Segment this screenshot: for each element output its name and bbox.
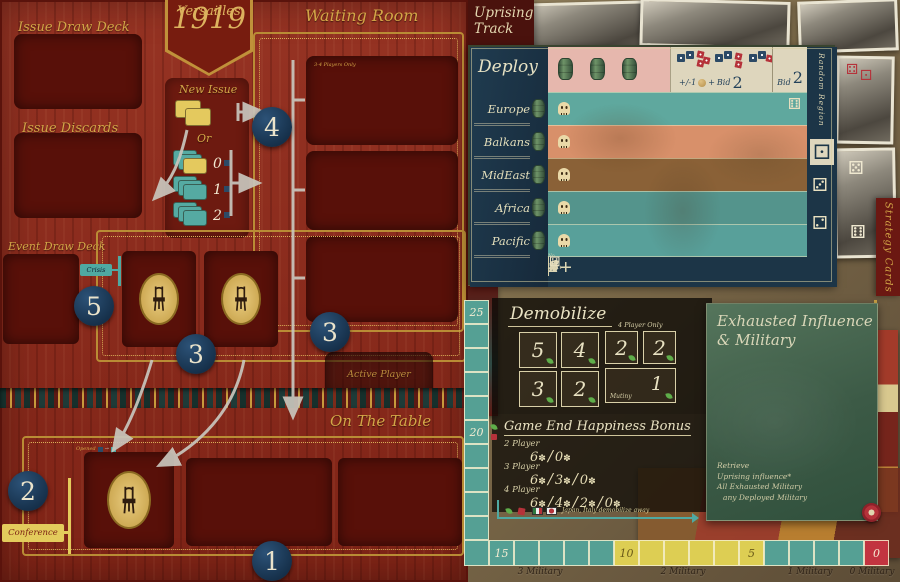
or-label: Or [197,132,211,145]
military-label: 3 Military [505,567,575,577]
waiting-room-slot-2 [306,151,458,230]
white-die-icon: ⚂ [812,175,828,196]
exhausted-title: Exhausted Influence & Military [717,312,873,350]
region-label-africa: Africa [474,201,530,225]
bid-value: 2 [732,73,742,92]
main-board: Issue Draw Deck Issue Discards Versaille… [0,0,468,582]
deploy-row-africa [548,191,807,224]
demobilize-box-4p: 2 [643,331,676,364]
demobilize-box: 4 [561,332,599,368]
uprising-line2: Track [474,21,533,37]
step-2-marker: 2 [8,471,48,511]
stack-count: 1 [213,182,222,198]
deploy-row-europe [548,92,807,125]
flower-icon: ✽ [588,477,596,487]
skull-icon [558,234,570,247]
deploy-header-bid: +/-1 + Bid 2 [670,47,772,92]
bid-word: Bid [717,78,731,87]
score-cell [664,540,689,566]
cube-icon [224,212,230,218]
flower-icon: ✽ [563,454,571,464]
barrel-icon [532,165,545,184]
versailles-1919-board: Issue Draw Deck Issue Discards Versaille… [0,0,900,582]
leaf-icon [666,354,673,361]
rosette-icon [862,503,881,522]
players-only-note: 3-4 Players Only [314,62,356,68]
demobilize-arrow-note: Japan, Italy demobilize away [492,500,707,522]
step-3-marker: 3 [310,312,350,352]
white-die-icon: ⚅ [850,222,866,243]
exhausted-notes: Retrieve Uprising influence* All Exhaust… [717,461,807,503]
demobilize-box: 5 [519,332,557,368]
deploy-result-row: x x 6+ 5+ 4+ 3+ 2+ 1+ ⚅ No Effect [548,257,837,287]
happiness-title: Game End Happiness Bonus [504,419,691,436]
score-cell [814,540,839,566]
score-cell [464,444,489,468]
demobilize-value: 2 [615,336,628,360]
step-5-marker: 5 [74,286,114,326]
happiness-value: 0 [580,473,588,488]
military-label: 2 Military [648,567,718,577]
navy-die-icon [715,54,723,62]
exhausted-note: Retrieve [717,461,807,472]
score-cell [689,540,714,566]
skull-icon [558,201,570,214]
table-chair-slot [84,452,174,548]
demobilize-panel: Demobilize 5 4 3 2 4 Player Only 2 2 1 M… [492,298,712,414]
navy-die-icon [677,54,685,62]
happiness-value: 3 [555,473,563,488]
demobilize-value: 2 [653,336,666,360]
score-cell [764,540,789,566]
barrel-icon [532,99,545,118]
military-label: 1 Military [775,567,845,577]
barrel-icon [532,198,545,217]
deploy-table: Deploy Europe Balkans MidEast Africa Pac… [468,45,835,285]
arrow-line [497,500,499,518]
region-label-europe: Europe [474,102,530,126]
exhausted-note: Uprising influence* [717,472,807,483]
demobilize-title: Demobilize [508,304,612,327]
leaf-icon [588,357,595,364]
exhausted-note: any Deployed Military [717,493,807,504]
cube-icon [224,186,230,192]
uprising-line1: Uprising [474,5,533,21]
score-cell-10: 10 [614,540,639,566]
exhausted-title-line1: Exhausted Influence [717,312,873,331]
score-cell [789,540,814,566]
score-cell [514,540,539,566]
issue-card [183,210,207,226]
demobilize-box: 3 [519,371,557,407]
step-4-marker: 4 [252,107,292,147]
score-cell-5: 5 [739,540,764,566]
bid-right-word: Bid [777,78,791,87]
score-cell [464,516,489,540]
bid-right-value: 2 [791,68,803,87]
mutiny-label: Mutiny [610,393,632,400]
game-title-year: 1919 [172,4,246,32]
stack-count: 0 [213,156,222,172]
demobilize-value: 3 [532,377,545,401]
mutiny-value: 1 [651,373,663,395]
score-cell [639,540,664,566]
issue-card [185,108,211,126]
step-3-marker: 3 [176,334,216,374]
arrow-line [497,517,695,519]
japan-flag-icon [546,507,557,515]
red-die-icon [696,59,704,67]
red-die-icon [517,507,525,515]
score-cell [564,540,589,566]
red-die-icon: ⚃ [846,62,858,78]
chair-card-slot [122,251,196,347]
active-player-label: Active Player [347,369,411,380]
region-label-pacific: Pacific [474,234,530,258]
table-slot [186,458,332,546]
deploy-label-column: Deploy Europe Balkans MidEast Africa Pac… [470,47,548,287]
title-plaque-inner: Versailles 1919 [168,0,250,73]
navy-die-icon [758,51,766,59]
score-cell-25: 25 [464,300,489,324]
flower-icon: ✽ [563,477,571,487]
new-issue-label: New Issue [179,83,237,96]
white-die-icon: ⚁ [812,213,828,234]
issue-card [183,184,207,200]
score-cell-20: 20 [464,420,489,444]
title-plaque: Versailles 1919 [165,0,253,76]
navy-die-icon [686,51,694,59]
score-cell [714,540,739,566]
score-cell [464,324,489,348]
random-region-label: Random Region [817,53,826,127]
leaf-icon [505,507,512,514]
score-cell [464,540,489,566]
leaf-icon [546,396,553,403]
conference-connector [68,478,71,554]
leaf-icon [588,396,595,403]
navy-die-icon [749,54,757,62]
demobilize-box: 2 [561,371,599,407]
score-cell-0: 0 [864,540,889,566]
bid-plus: + [708,78,715,87]
deploy-header-bid2: Bid 2 [772,47,807,92]
score-cell [539,540,564,566]
stack-count: 2 [213,208,222,224]
crisis-connector [118,256,121,286]
leaf-icon [546,357,553,364]
navy-die-icon [724,51,732,59]
chair-medallion-icon [221,273,261,325]
coin-icon [698,79,706,87]
red-die-icon: ⚀ [860,68,872,84]
skull-icon [558,168,570,181]
leaf-icon [665,392,672,399]
white-die-icon: ⚄ [848,158,864,179]
score-cell [464,396,489,420]
cube-icon [98,447,103,452]
deploy-title: Deploy [478,57,538,77]
exhausted-note: All Exhausted Military [717,482,807,493]
no-effect-label: No Effect [548,251,561,275]
demobilize-value: 5 [532,338,545,362]
demobilize-note-text: Japan, Italy demobilize away [562,507,649,514]
exhausted-panel: Exhausted Influence & Military Retrieve … [706,303,878,521]
barrel-icon [532,231,545,250]
photo-collage-item [639,0,790,50]
score-cell [464,468,489,492]
demobilize-value: 2 [574,377,587,401]
issue-discards-slot [14,133,142,218]
cube-icon [224,160,230,166]
deploy-row-balkans [548,125,807,158]
barrel-icon [532,132,545,151]
deploy-header-barrels [548,47,670,92]
score-cell [464,492,489,516]
on-the-table-title: On The Table [330,412,431,430]
happiness-bonus-panel: Game End Happiness Bonus 2 Player 6✽/0✽ … [492,414,708,512]
red-marker-icon [491,434,497,440]
barrel-icon [590,58,605,80]
white-die-icon: ⚅ [788,95,801,113]
score-cell [464,372,489,396]
score-cell-15: 15 [489,540,514,566]
score-cell [464,348,489,372]
demobilize-value: 4 [574,338,587,362]
bid-plusminus: +/-1 [679,78,696,87]
four-player-only-note: 4 Player Only [618,321,663,329]
strategy-cards-label: Strategy Cards [883,202,894,293]
waiting-room-title: Waiting Room [305,6,418,25]
uprising-track-title: Uprising Track [474,5,533,37]
happiness-value: 0 [555,450,563,465]
exhausted-title-line2: & Military [717,331,873,350]
carpet-strip [0,388,468,408]
die-one-icon: ⚀ [813,140,830,164]
random-region-column: Random Region ⚀ ⚂ ⚁ [807,47,837,257]
italy-flag-icon [532,507,543,515]
new-issue-panel: New Issue Or 0 1 2 [165,78,249,238]
chair-card-slot [204,251,278,347]
demobilize-box-4p: 2 [605,331,638,364]
event-draw-deck-label: Event Draw Deck [8,240,105,253]
score-cell [589,540,614,566]
no-effect-cell: ⚅ No Effect [548,257,560,269]
leaf-icon [628,354,635,361]
score-cell [839,540,864,566]
deploy-row-mideast [548,158,807,191]
issue-card [183,158,207,174]
waiting-room-slot-1: 3-4 Players Only [306,56,458,145]
die-one-cell: ⚀ [810,139,834,165]
skull-icon [558,102,570,115]
military-label: 0 Military [843,567,900,577]
barrel-icon [622,58,637,80]
skull-icon [558,135,570,148]
region-label-mideast: MidEast [474,168,530,192]
barrel-icon [558,58,573,80]
event-draw-deck-slot [3,254,79,344]
crisis-tag: Crisis [80,264,112,276]
table-slot [338,458,462,546]
chair-medallion-icon [139,273,179,325]
conference-tag: Conference [2,524,64,542]
step-1-marker: 1 [252,541,292,581]
red-die-icon [734,60,742,68]
issue-draw-deck-slot [14,34,142,109]
issue-draw-deck-label: Issue Draw Deck [18,20,130,35]
region-label-balkans: Balkans [474,135,530,159]
deploy-row-pacific [548,224,807,257]
chair-medallion-icon [107,471,151,529]
mutiny-box: 1 Mutiny [605,368,676,403]
strategy-cards-spine: Strategy Cards [876,198,900,296]
cube-icon [111,447,116,452]
